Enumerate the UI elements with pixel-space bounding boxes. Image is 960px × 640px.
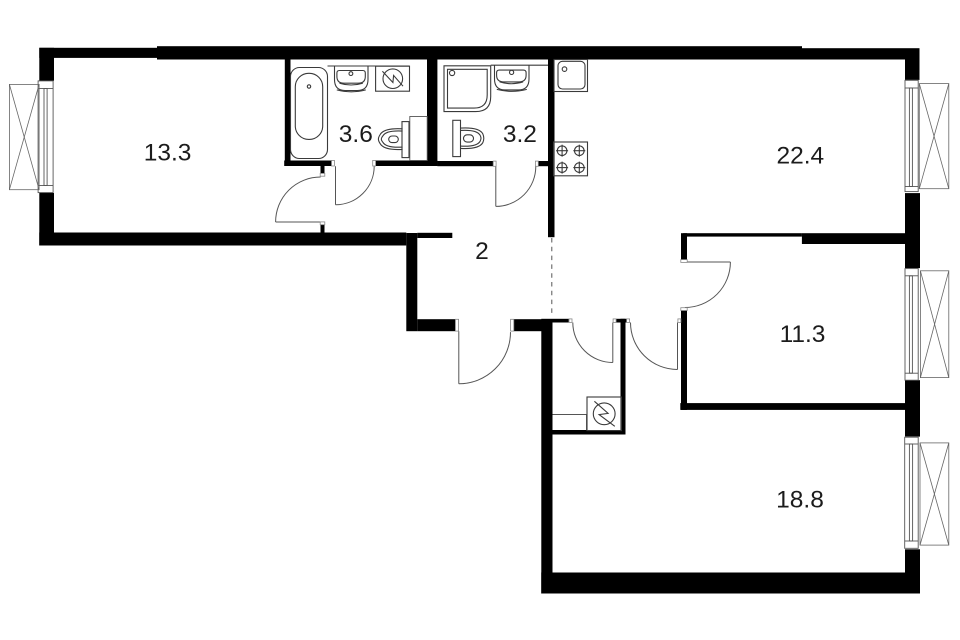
- svg-text:22.4: 22.4: [776, 142, 824, 169]
- svg-text:13.3: 13.3: [144, 140, 192, 167]
- svg-text:2: 2: [475, 238, 489, 265]
- svg-text:3.2: 3.2: [503, 121, 537, 148]
- svg-text:18.8: 18.8: [776, 487, 824, 514]
- svg-text:3.6: 3.6: [339, 121, 373, 148]
- svg-text:11.3: 11.3: [780, 321, 826, 348]
